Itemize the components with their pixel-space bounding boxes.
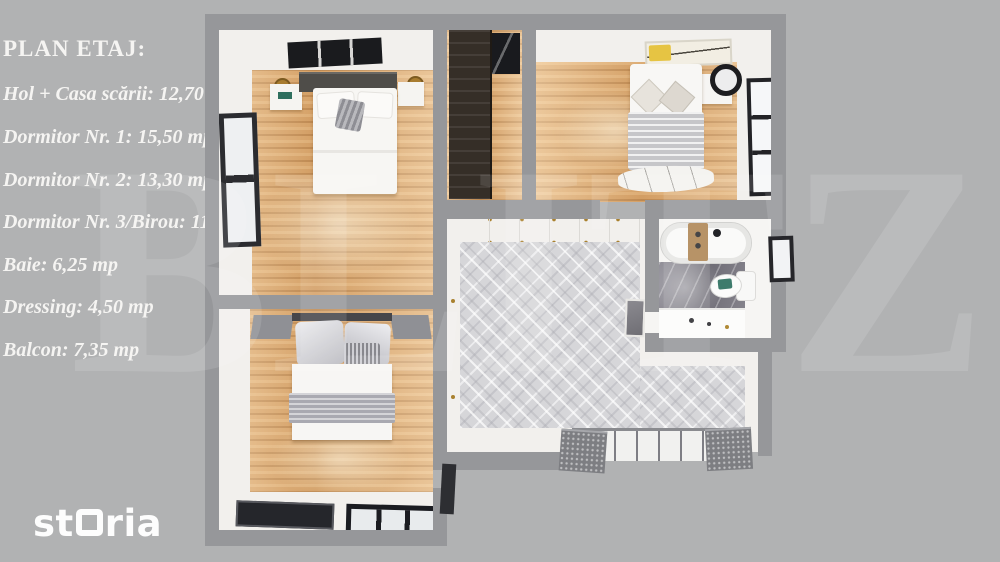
closet-handle-gold xyxy=(451,395,455,399)
blanket-ruffled xyxy=(289,393,395,423)
wall-art-yellow xyxy=(649,45,672,62)
room-area-dressing: Dressing: 4,50 mp xyxy=(3,296,154,319)
bathroom-floor xyxy=(645,205,786,352)
wardrobe-dark xyxy=(449,30,492,199)
storia-logo: stria xyxy=(33,502,162,545)
wall-right-exterior xyxy=(771,30,786,352)
bedroom3 xyxy=(219,309,433,530)
bedroom2 xyxy=(536,30,771,202)
wall-left-exterior xyxy=(205,14,219,546)
dressing-room xyxy=(447,30,522,202)
hall-wall-art xyxy=(624,299,645,338)
vanity-accessory-gold xyxy=(725,325,729,329)
wall-bathroom-left xyxy=(645,219,659,312)
watermark-letter: Z xyxy=(787,98,987,443)
bed-headboard-rail xyxy=(292,313,392,321)
mirror-panel xyxy=(492,33,520,74)
duvet-fold xyxy=(313,150,397,153)
toilet-decor-green xyxy=(718,278,733,289)
duvet-striped xyxy=(628,112,704,170)
bedroom1 xyxy=(219,30,433,295)
tub-faucet xyxy=(713,229,721,237)
logo-text-st: st xyxy=(33,502,74,545)
hall-closet-doors xyxy=(460,219,645,242)
wall-hall-left xyxy=(433,14,447,455)
wall-below-top-rooms-right xyxy=(645,200,786,219)
floor-plan-image: PLAN ETAJ: Hol + Casa scării: 12,70 mp D… xyxy=(0,0,1000,562)
wall-below-top-rooms-left xyxy=(447,200,600,219)
stair-dark-stringer xyxy=(440,464,457,515)
closet-handle-gold xyxy=(451,299,455,303)
logo-text-ria: ria xyxy=(105,502,162,545)
wall-corridor-right xyxy=(758,352,772,456)
wall-art-triptych xyxy=(287,38,382,69)
plan-title: PLAN ETAJ: xyxy=(3,36,146,62)
logo-square-o-icon xyxy=(76,509,103,536)
wall-shelf-panel xyxy=(390,315,431,339)
room-area-dormitor2: Dormitor Nr. 2: 13,30 mp xyxy=(3,169,213,192)
stair-newel-granite xyxy=(559,428,608,473)
wall-bathroom-bottom xyxy=(645,338,786,352)
herringbone-tile-right xyxy=(640,366,745,428)
window xyxy=(219,112,262,247)
alarm-clock xyxy=(710,64,742,96)
wall-bedroom-divider xyxy=(205,295,447,309)
wall-shelf-panel xyxy=(250,315,293,339)
room-area-hol: Hol + Casa scării: 12,70 mp xyxy=(3,83,234,106)
wall-bottom-exterior xyxy=(205,530,447,546)
double-bed xyxy=(313,88,397,194)
stair-newel-granite xyxy=(705,427,753,471)
bathroom-window xyxy=(768,236,795,283)
vanity-accessory-dark xyxy=(707,322,711,326)
throw-pillow-striped xyxy=(335,98,366,132)
window-panel xyxy=(236,500,335,529)
pillow-silver xyxy=(295,320,345,366)
wall-dressing-right xyxy=(522,30,536,202)
room-area-baie: Baie: 6,25 mp xyxy=(3,254,118,277)
nightstand-books xyxy=(278,92,292,99)
nightstand xyxy=(398,82,424,106)
wall-top-exterior xyxy=(205,14,786,30)
herringbone-tile-main xyxy=(460,242,640,428)
sink-faucet xyxy=(689,318,694,323)
room-area-balcon: Balcon: 7,35 mp xyxy=(3,339,139,362)
room-area-dormitor1: Dormitor Nr. 1: 15,50 mp xyxy=(3,126,213,149)
vanity-counter xyxy=(659,308,745,340)
bathtub-caddy-tray xyxy=(688,223,708,261)
